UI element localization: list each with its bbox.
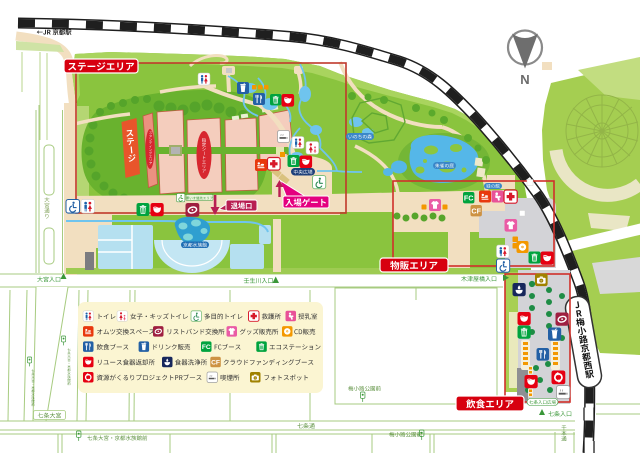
svg-text:N: N (520, 72, 529, 87)
